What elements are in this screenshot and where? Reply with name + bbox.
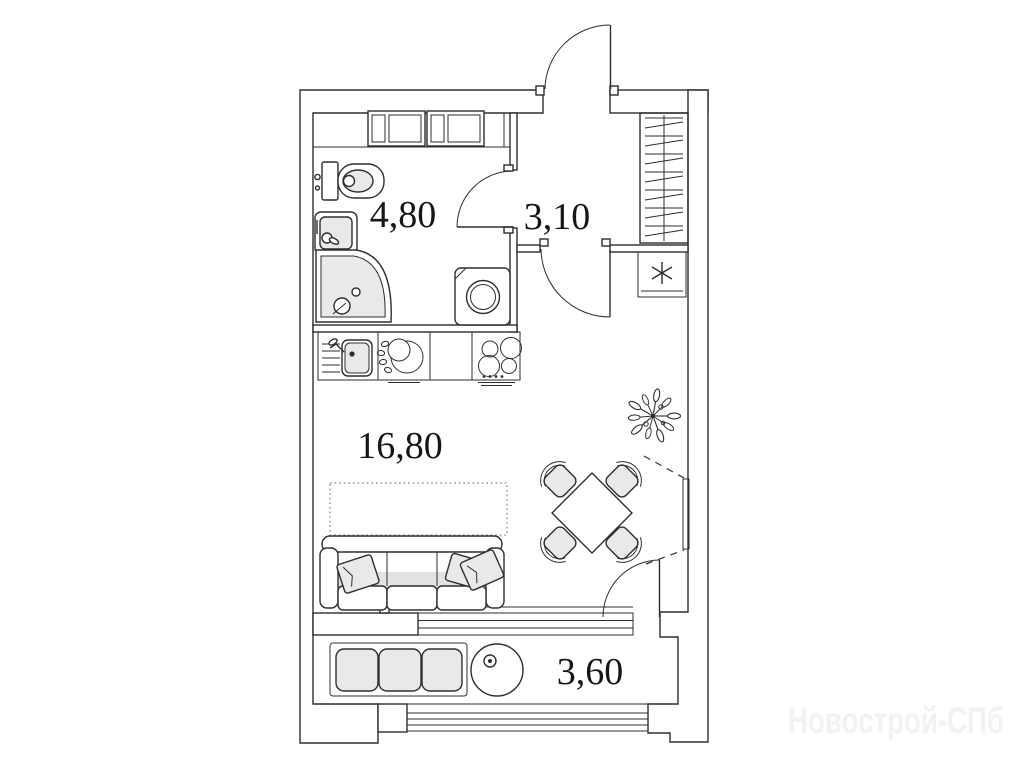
sofa [320,536,505,610]
asterisk-icon [652,262,672,284]
window-room-balcony [418,613,633,635]
hall-door [541,249,610,317]
door-jamb [536,86,544,95]
dish-rack [377,339,423,374]
wardrobe-with-hangers [640,113,688,243]
cooktop [478,338,522,386]
door-jamb [540,239,548,246]
hallway-area-label: 3,10 [524,196,591,238]
washing-machine [455,268,510,325]
entrance-door [545,25,611,89]
balcony-door [603,560,660,617]
kitchen-sink [322,338,372,376]
bathroom-area-label: 4,80 [370,194,437,236]
balcony-area-label: 3,60 [557,651,624,693]
dining-set [534,455,648,569]
wall-segment [610,245,688,252]
living-room-furniture [320,388,681,610]
door-jamb [504,227,513,233]
door-jamb [602,239,610,246]
plant [628,388,681,442]
window-balcony-outer [407,713,648,731]
wall-segment [313,613,418,635]
wall-segment [510,113,517,170]
bed-zone-dashed [330,483,507,535]
wash-basin [315,212,357,254]
balcony-round-table [471,644,523,696]
floor-plan-drawing: 4,80 3,10 16,80 3,60 Новострой-СПб [0,0,1009,768]
living-room-area-label: 16,80 [357,425,443,467]
balcony-bench [330,643,467,696]
balcony-furniture [330,643,523,696]
wall-segment [378,704,407,732]
corner-shower [316,250,391,322]
wall-segment [510,228,517,332]
storage-shelves [313,111,510,147]
hallway-fixtures [638,113,688,297]
door-jamb [504,165,513,171]
wall-segment [313,325,517,332]
window-right-dashed [644,456,689,564]
bathroom-door [457,171,513,227]
appliance-unit-asterisk [638,252,686,297]
wall-segment [517,245,540,252]
kitchen-counter [318,332,522,386]
floor-plan-page: 4,80 3,10 16,80 3,60 Новострой-СПб [0,0,1009,768]
watermark: Новострой-СПб [788,700,1004,741]
